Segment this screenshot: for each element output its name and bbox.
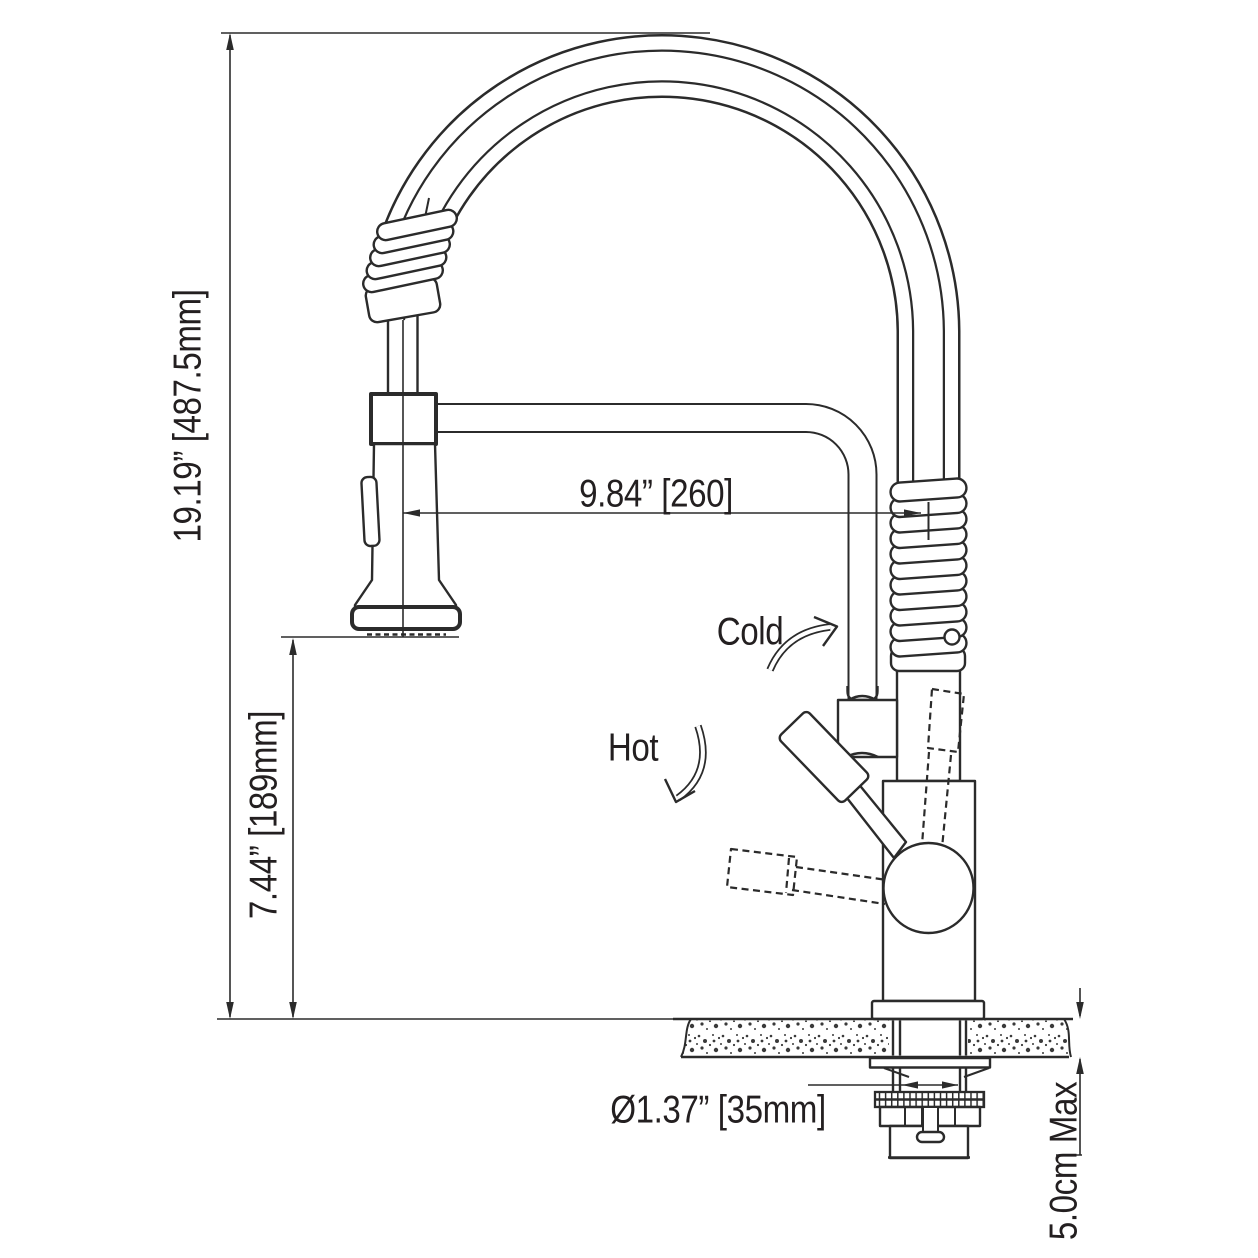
hose-swivel-block [838, 700, 897, 757]
technical-drawing-canvas [0, 0, 1258, 1258]
overall-height-dimension [226, 33, 234, 1019]
spray-head [352, 320, 460, 637]
spray-head-cap [352, 607, 460, 629]
cold-label: Cold [717, 613, 783, 652]
hole-diameter-dimension [808, 1081, 958, 1088]
spray-trigger [361, 477, 380, 547]
hot-direction-arrow-icon [665, 726, 703, 802]
overall-height-label: 19.19” [487.5mm] [169, 289, 208, 542]
mounting-stud-cap [917, 1132, 944, 1142]
max-thickness-label: 5.0cm Max [1045, 1082, 1084, 1240]
mounting-hardware [870, 1058, 990, 1158]
faucet-body [727, 668, 984, 1019]
ball-joint [884, 843, 974, 933]
hot-label: Hot [608, 729, 658, 768]
spout-reach-label: 9.84” [260] [579, 475, 733, 514]
countertop [673, 1019, 1073, 1092]
spring-wire-end [945, 630, 960, 645]
pulldown-hose [362, 198, 459, 400]
faucet-dimension-diagram: 19.19” [487.5mm] 7.44” [189mm] 9.84” [26… [0, 0, 1258, 1258]
base-flange [872, 1001, 984, 1019]
spout-support-arm [437, 418, 863, 703]
spray-height-label: 7.44” [189mm] [245, 711, 284, 919]
hole-diameter-label: Ø1.37” [35mm] [610, 1091, 826, 1130]
spray-height-dimension [289, 638, 297, 1019]
mounting-washer [870, 1058, 990, 1068]
